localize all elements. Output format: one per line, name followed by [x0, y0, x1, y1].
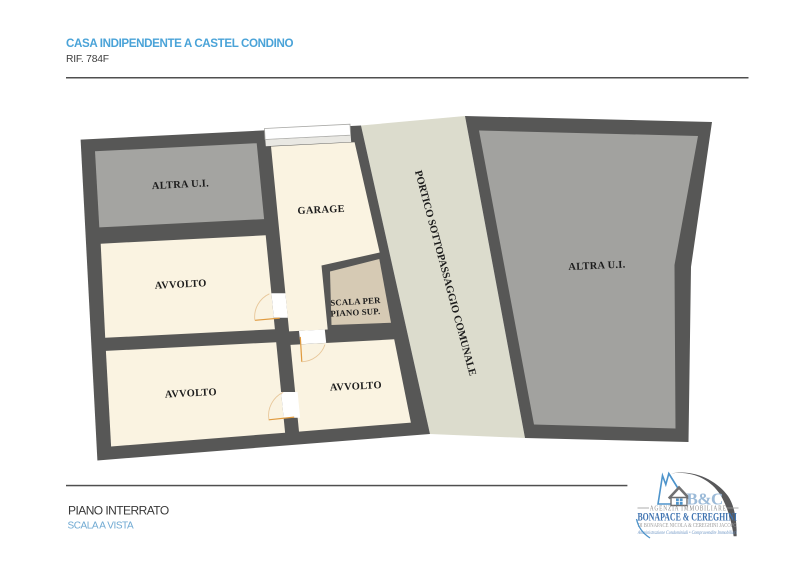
svg-text:BONAPACE & CEREGHINI: BONAPACE & CEREGHINI [637, 512, 737, 524]
svg-text:RIF. 784F: RIF. 784F [66, 54, 109, 65]
svg-text:DI BONAPACE NICOLA & CEREGHINI: DI BONAPACE NICOLA & CEREGHINI JACOPO [638, 523, 737, 529]
svg-text:GARAGE: GARAGE [297, 204, 345, 217]
svg-text:CASA INDIPENDENTE A CASTEL CON: CASA INDIPENDENTE A CASTEL CONDINO [66, 37, 293, 50]
svg-text:PIANO INTERRATO: PIANO INTERRATO [68, 504, 169, 518]
svg-text:SCALA A VISTA: SCALA A VISTA [68, 521, 134, 532]
svg-text:Amministrazione Condominiali •: Amministrazione Condominiali • Compraven… [637, 530, 737, 536]
